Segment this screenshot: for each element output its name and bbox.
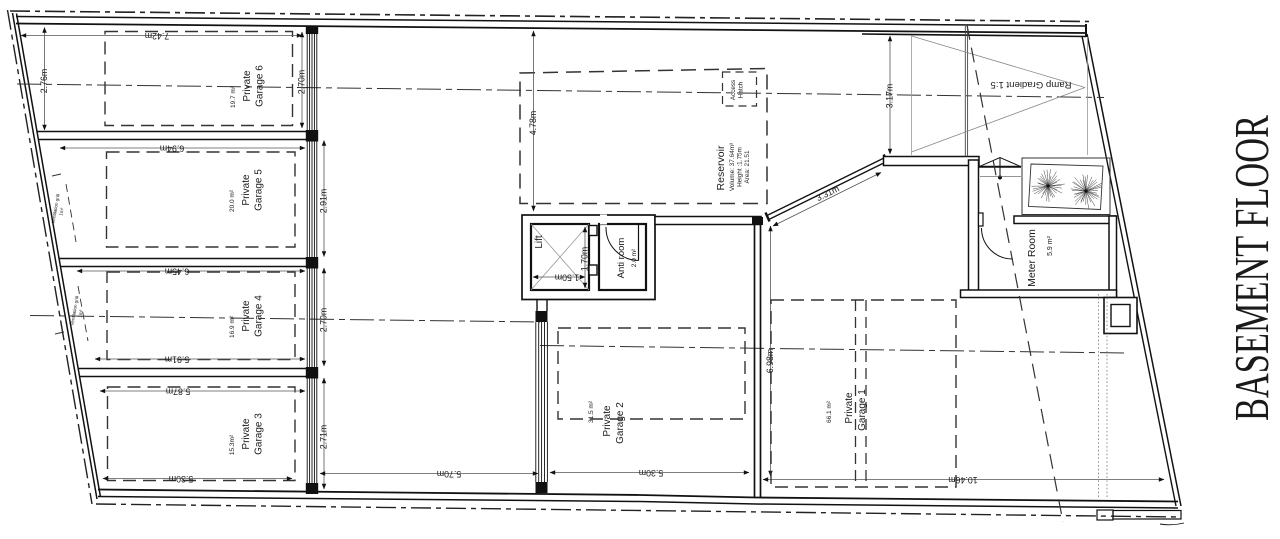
svg-text:Hatch: Hatch [738,81,745,98]
svg-text:Private: Private [602,405,613,437]
svg-text:Private: Private [241,418,252,450]
svg-text:Area: 21.51: Area: 21.51 [744,150,751,183]
svg-text:66.1 m²: 66.1 m² [826,400,833,423]
svg-text:4.78m: 4.78m [528,111,538,135]
svg-text:Garage 5: Garage 5 [254,169,265,211]
svg-text:Ramp Gradient 1:5: Ramp Gradient 1:5 [990,79,1071,90]
svg-text:Private: Private [241,300,252,332]
svg-text:3.17m: 3.17m [885,84,895,108]
svg-text:Garage 3: Garage 3 [254,413,265,455]
svg-text:Access: Access [730,80,737,100]
svg-text:Garage 6: Garage 6 [255,65,266,107]
svg-text:Lift: Lift [534,235,545,249]
svg-text:20.0 m²: 20.0 m² [229,189,236,212]
svg-text:1.70m: 1.70m [580,247,590,271]
svg-text:5.9 m²: 5.9 m² [1047,235,1054,256]
svg-text:15.3m²: 15.3m² [229,434,236,455]
svg-text:2.70m: 2.70m [297,70,307,94]
svg-text:Meter Room: Meter Room [1026,229,1038,287]
svg-text:5.87m: 5.87m [166,387,190,397]
svg-text:5.70m: 5.70m [437,469,461,479]
svg-text:2.91m: 2.91m [319,189,329,213]
svg-text:Garage 4: Garage 4 [254,295,265,337]
svg-text:1.50m: 1.50m [555,273,579,283]
svg-text:Height :1.75m: Height :1.75m [737,147,744,187]
svg-text:2.76m: 2.76m [39,69,49,93]
svg-text:31.5 m²: 31.5 m² [588,400,595,423]
svg-text:Volume: 37.64m³: Volume: 37.64m³ [729,143,736,191]
svg-text:2.70m: 2.70m [319,308,329,332]
svg-text:Reservoir: Reservoir [715,145,727,190]
svg-text:Private: Private [241,174,252,206]
svg-text:Private: Private [242,70,253,102]
svg-text:6.94m: 6.94m [160,144,184,154]
svg-text:BASEMENT FLOOR: BASEMENT FLOOR [1224,115,1279,421]
svg-text:Private: Private [844,392,855,424]
svg-text:2.71m: 2.71m [319,425,329,449]
svg-text:5.91m: 5.91m [165,355,189,365]
svg-text:Garage 1: Garage 1 [857,389,868,431]
svg-text:6.45m: 6.45m [165,267,189,277]
svg-text:19.7 m²: 19.7 m² [230,85,237,108]
svg-text:6.98m: 6.98m [765,349,775,373]
svg-text:10.46m: 10.46m [948,475,977,485]
svg-text:Garage 2: Garage 2 [615,402,626,444]
svg-text:16.9 m²: 16.9 m² [229,315,236,338]
svg-text:5.30m: 5.30m [639,468,663,478]
svg-text:5.30m: 5.30m [169,474,193,484]
svg-text:2.0 m²: 2.0 m² [631,248,638,267]
svg-text:7.42m: 7.42m [145,31,169,41]
